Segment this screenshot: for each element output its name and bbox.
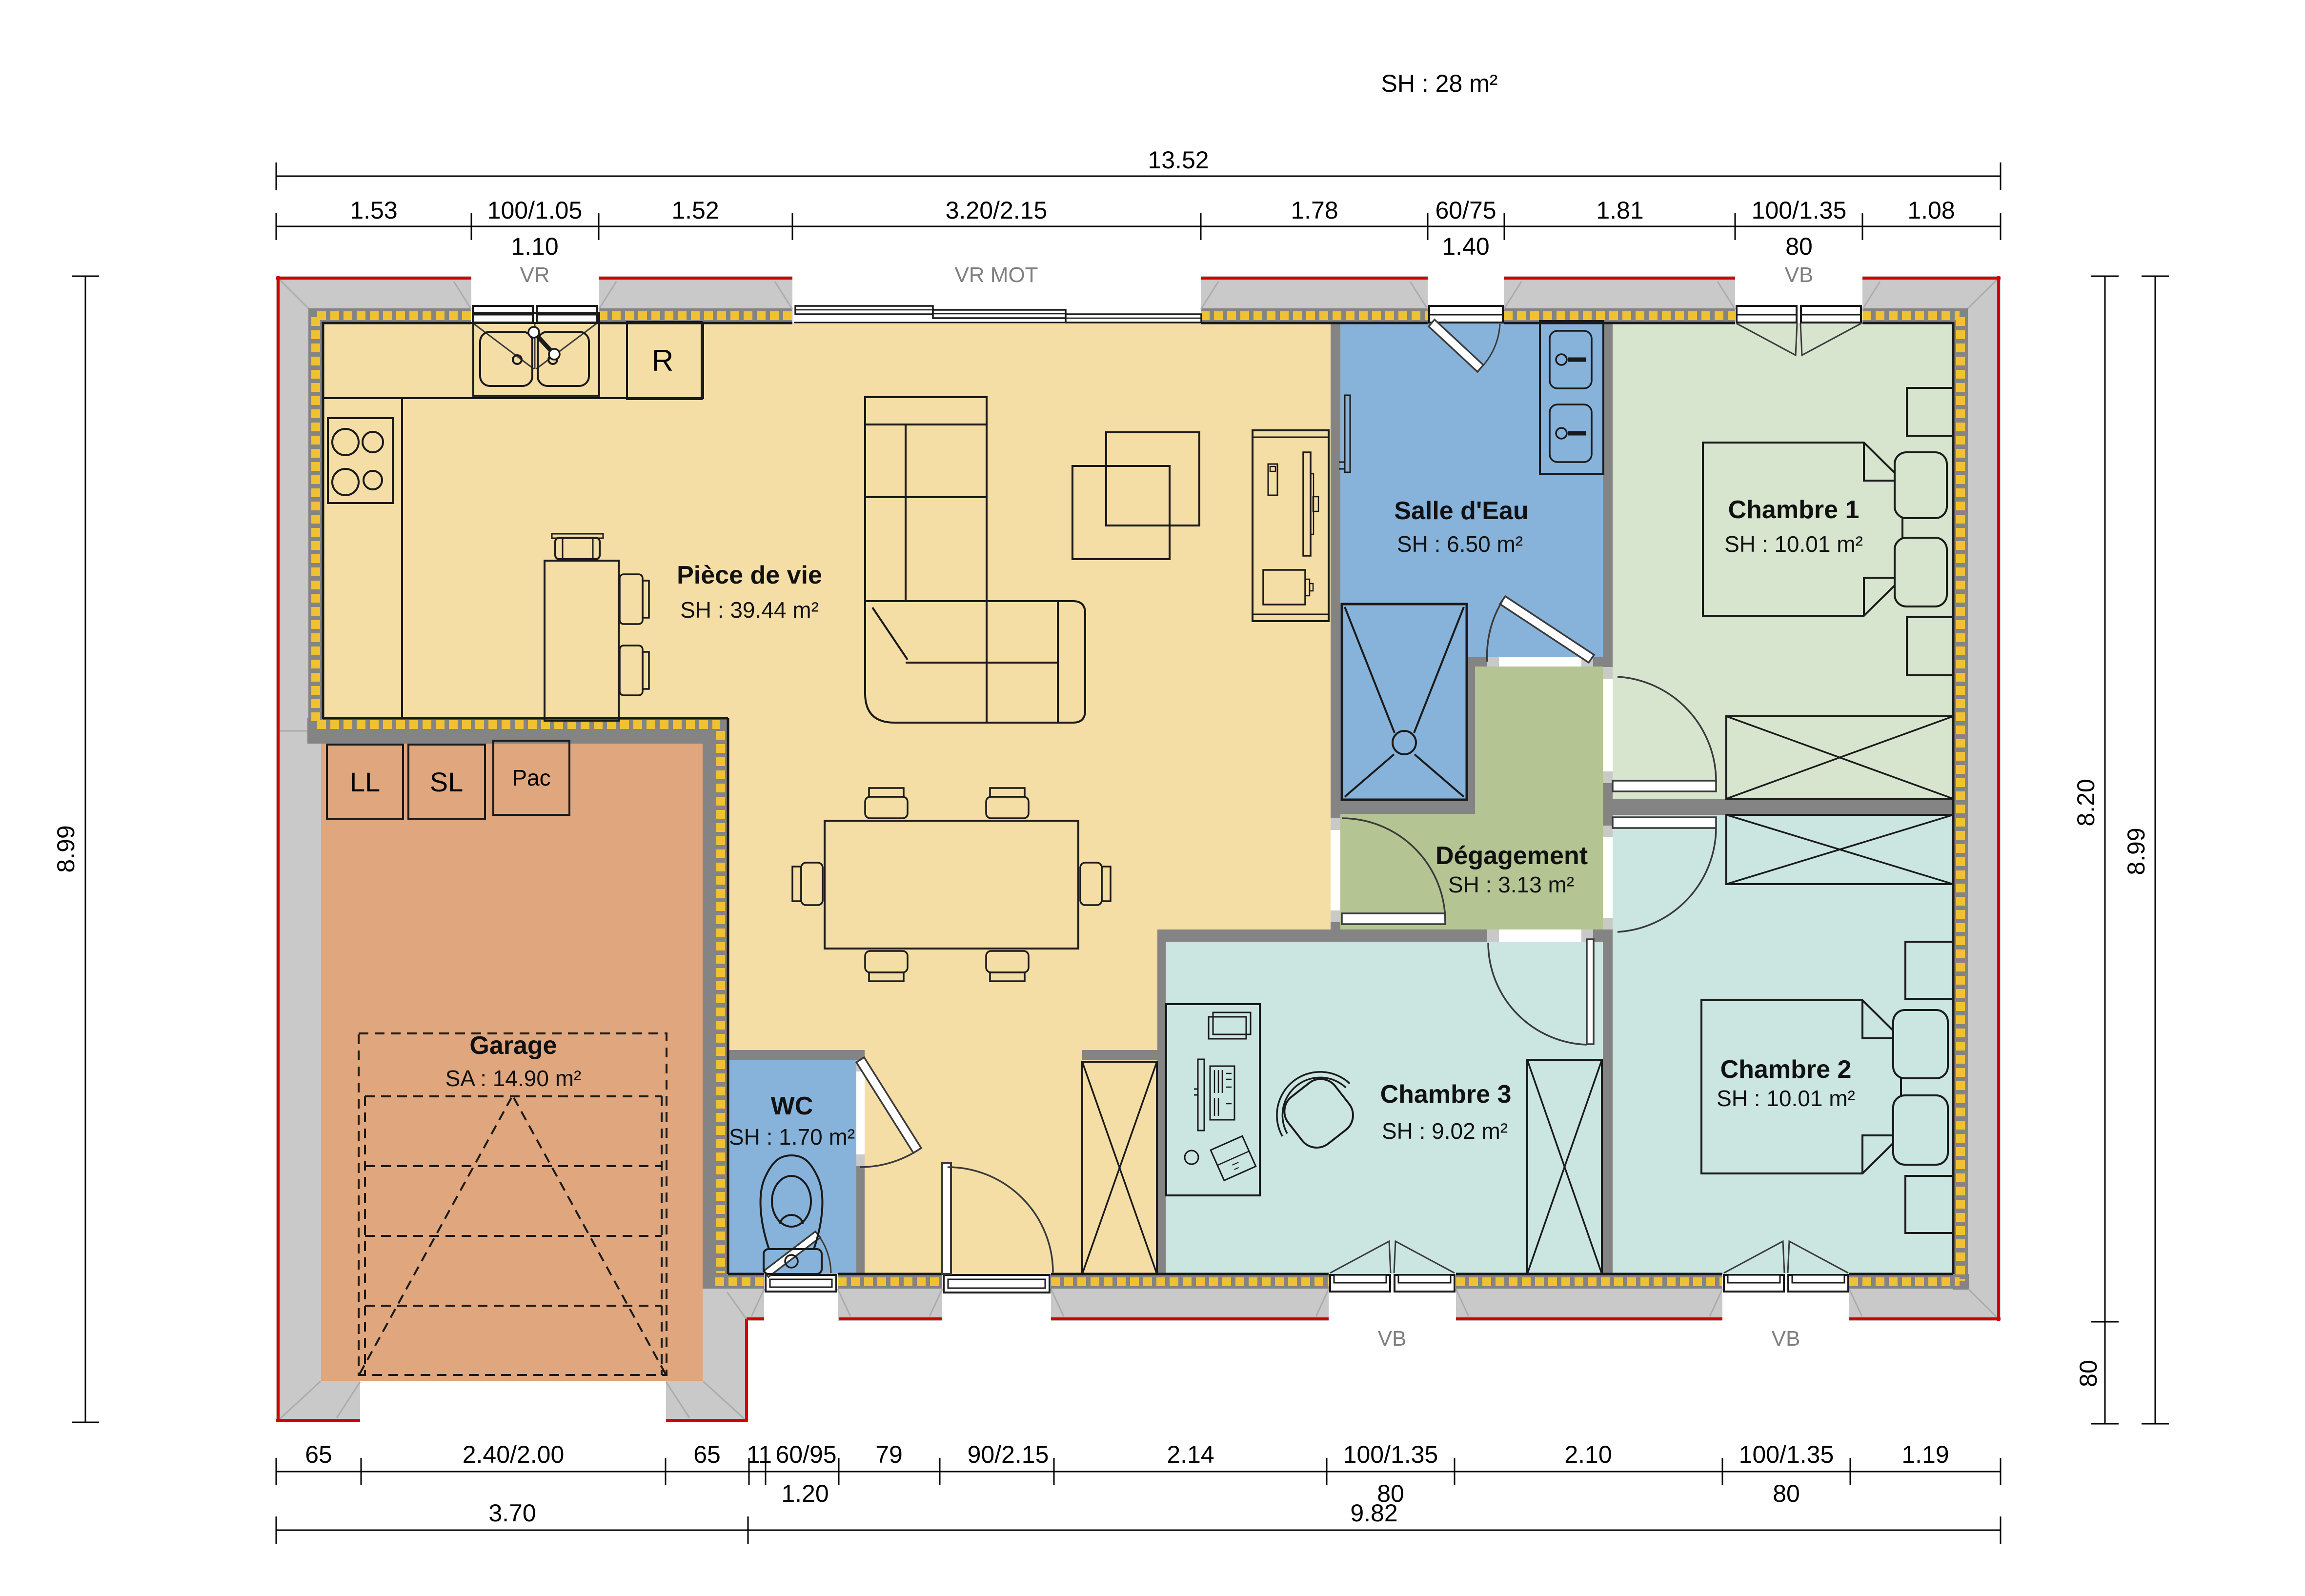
svg-text:1.53: 1.53: [350, 197, 397, 224]
svg-text:LL: LL: [350, 767, 380, 797]
svg-text:2.14: 2.14: [1167, 1441, 1214, 1468]
svg-text:9.82: 9.82: [1350, 1499, 1397, 1527]
svg-text:SH : 9.02 m²: SH : 9.02 m²: [1382, 1118, 1508, 1144]
svg-text:8.20: 8.20: [2072, 779, 2100, 826]
svg-text:8.99: 8.99: [52, 825, 80, 872]
svg-text:1.81: 1.81: [1596, 197, 1643, 224]
svg-text:1.78: 1.78: [1291, 197, 1338, 224]
svg-text:SH : 1.70 m²: SH : 1.70 m²: [729, 1124, 855, 1150]
svg-text:SH : 6.50 m²: SH : 6.50 m²: [1397, 531, 1523, 557]
svg-text:SL: SL: [430, 767, 464, 797]
svg-text:1.40: 1.40: [1442, 233, 1489, 260]
svg-text:VB: VB: [1378, 1327, 1407, 1351]
svg-text:13.52: 13.52: [1148, 146, 1209, 174]
svg-text:1.19: 1.19: [1901, 1441, 1949, 1468]
svg-text:60/75: 60/75: [1435, 197, 1496, 224]
svg-text:3.70: 3.70: [488, 1499, 536, 1527]
svg-text:SH : 3.13 m²: SH : 3.13 m²: [1448, 872, 1574, 897]
svg-text:100/1.35: 100/1.35: [1739, 1441, 1834, 1468]
svg-text:100/1.05: 100/1.05: [487, 197, 583, 224]
svg-text:Chambre 3: Chambre 3: [1380, 1080, 1512, 1109]
svg-text:VR: VR: [520, 263, 549, 287]
svg-text:65: 65: [305, 1441, 332, 1468]
svg-text:3.20/2.15: 3.20/2.15: [946, 197, 1048, 224]
svg-text:79: 79: [875, 1441, 903, 1468]
svg-text:2.40/2.00: 2.40/2.00: [463, 1441, 565, 1468]
svg-text:SH : 28 m²: SH : 28 m²: [1381, 70, 1498, 97]
svg-text:SH : 10.01 m²: SH : 10.01 m²: [1724, 531, 1863, 557]
svg-text:Salle d'Eau: Salle d'Eau: [1394, 497, 1528, 525]
svg-text:1.08: 1.08: [1907, 197, 1955, 224]
svg-text:8.99: 8.99: [2123, 828, 2150, 875]
svg-text:VR MOT: VR MOT: [954, 263, 1038, 287]
svg-text:Garage: Garage: [469, 1031, 557, 1060]
svg-text:80: 80: [1785, 233, 1813, 260]
svg-text:90/2.15: 90/2.15: [968, 1441, 1049, 1468]
svg-text:SH : 39.44 m²: SH : 39.44 m²: [680, 597, 819, 623]
svg-text:11: 11: [747, 1441, 772, 1468]
svg-text:1.52: 1.52: [671, 197, 719, 224]
svg-text:SH : 10.01 m²: SH : 10.01 m²: [1717, 1086, 1855, 1111]
svg-text:100/1.35: 100/1.35: [1343, 1441, 1438, 1468]
svg-text:60/95: 60/95: [775, 1441, 836, 1468]
svg-text:Chambre 2: Chambre 2: [1720, 1055, 1852, 1084]
svg-text:WC: WC: [771, 1092, 813, 1120]
svg-text:Chambre 1: Chambre 1: [1728, 496, 1860, 524]
svg-text:1.10: 1.10: [511, 233, 558, 260]
svg-text:80: 80: [2075, 1360, 2102, 1387]
svg-text:80: 80: [1773, 1480, 1800, 1507]
svg-text:100/1.35: 100/1.35: [1752, 197, 1847, 224]
svg-text:Pièce de vie: Pièce de vie: [677, 561, 822, 589]
svg-text:VB: VB: [1772, 1327, 1800, 1351]
svg-text:R: R: [652, 344, 674, 378]
svg-text:1.20: 1.20: [781, 1480, 829, 1507]
svg-text:VB: VB: [1785, 263, 1814, 287]
svg-text:65: 65: [693, 1441, 721, 1468]
svg-text:2.10: 2.10: [1564, 1441, 1612, 1468]
svg-text:Pac: Pac: [512, 765, 550, 790]
svg-text:SA : 14.90 m²: SA : 14.90 m²: [445, 1066, 582, 1091]
svg-text:Dégagement: Dégagement: [1436, 842, 1588, 870]
